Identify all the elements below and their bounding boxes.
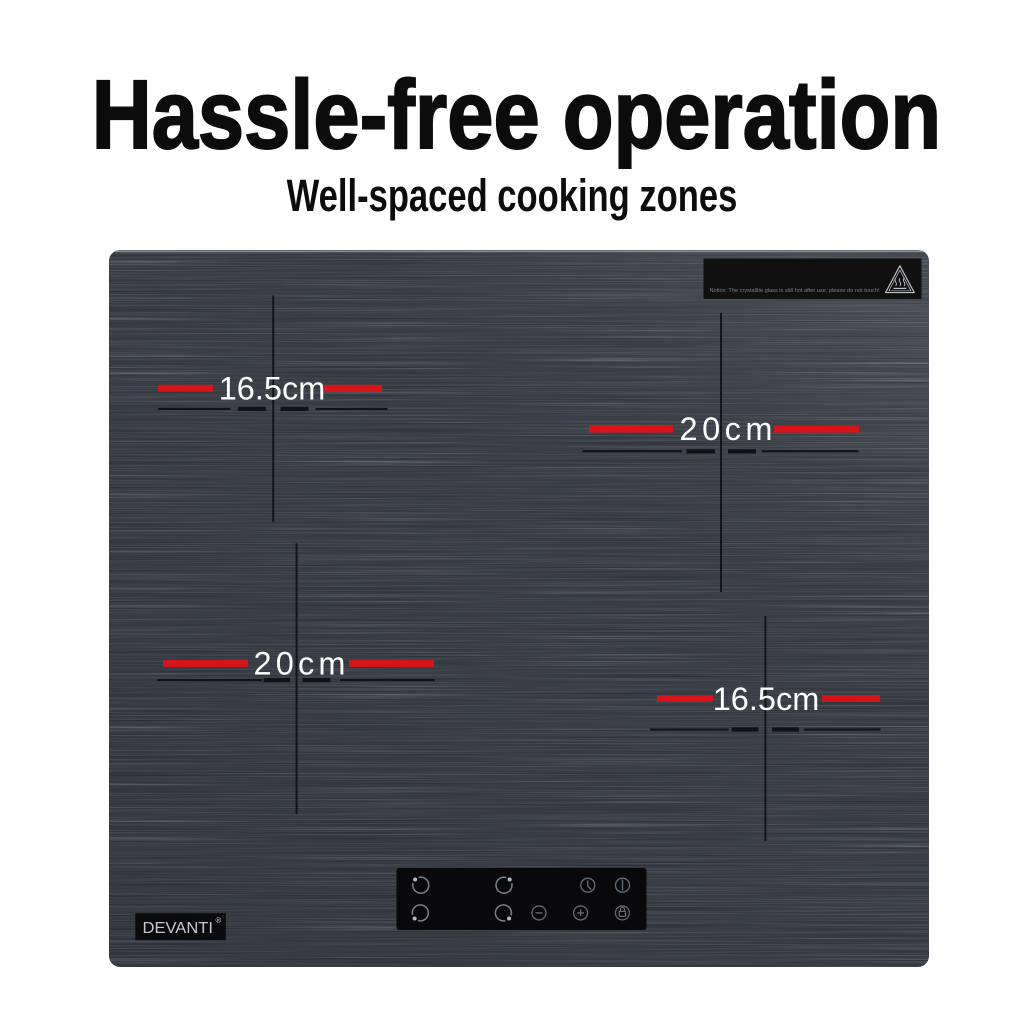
svg-text:R: R (217, 918, 220, 923)
svg-text:20cm: 20cm (680, 411, 773, 447)
svg-text:20cm: 20cm (254, 646, 346, 682)
svg-text:16.5cm: 16.5cm (713, 681, 820, 717)
svg-text:16.5cm: 16.5cm (219, 371, 326, 407)
svg-text:DEVANTI: DEVANTI (143, 920, 214, 937)
svg-text:Notice: The crystallite glass: Notice: The crystallite glass is still h… (710, 288, 880, 294)
